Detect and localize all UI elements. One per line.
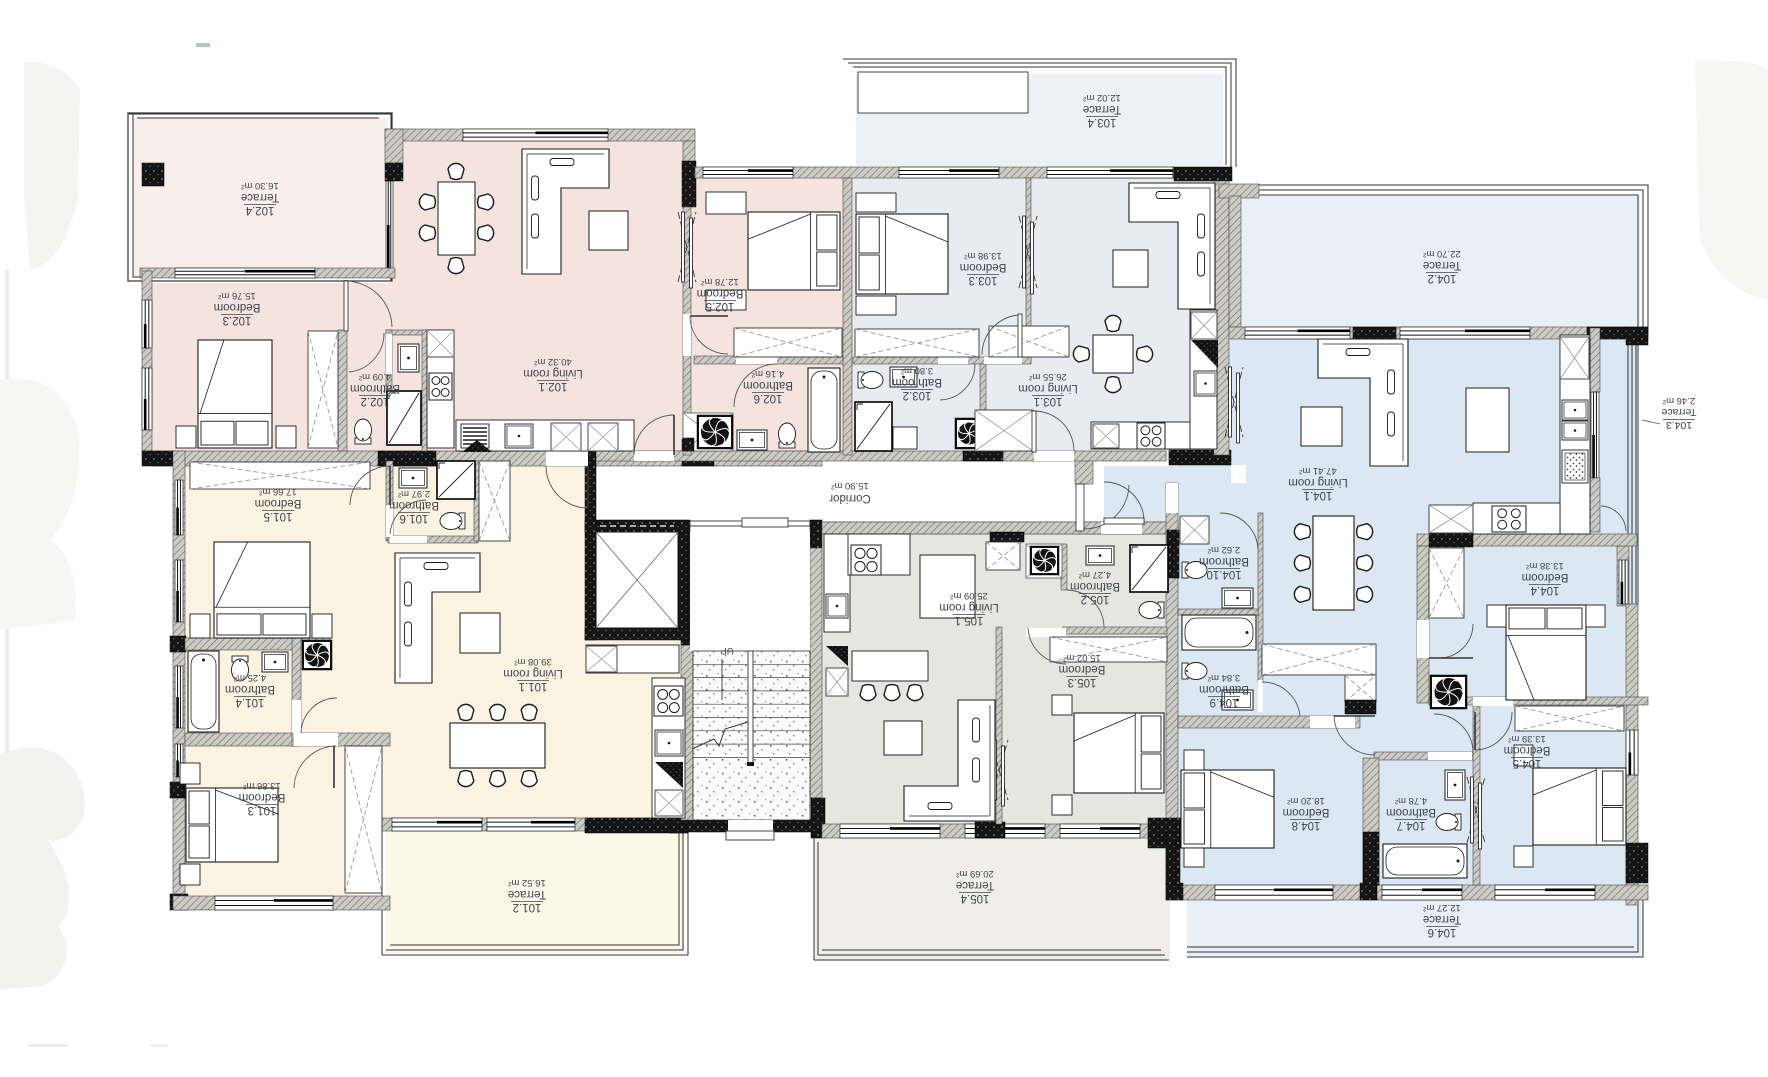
svg-text:Living room: Living room <box>503 667 562 679</box>
svg-text:26.55 m²: 26.55 m² <box>1029 371 1067 382</box>
svg-text:101.4: 101.4 <box>235 696 264 708</box>
svg-text:Terrace: Terrace <box>1423 259 1461 271</box>
svg-text:103.1: 103.1 <box>1034 395 1063 407</box>
svg-text:Bedroom: Bedroom <box>1522 571 1569 583</box>
svg-text:17.66 m²: 17.66 m² <box>259 486 297 497</box>
svg-text:3.80 m²: 3.80 m² <box>901 365 933 376</box>
svg-text:Bathroom: Bathroom <box>892 376 942 388</box>
svg-text:Corridor: Corridor <box>829 492 871 504</box>
svg-text:Bathroom: Bathroom <box>743 379 793 391</box>
svg-text:104.9: 104.9 <box>1210 696 1239 708</box>
svg-text:Terrace: Terrace <box>956 879 994 891</box>
svg-text:105.2: 105.2 <box>1081 593 1110 605</box>
svg-text:22.70 m²: 22.70 m² <box>1423 248 1461 259</box>
svg-text:Terrace: Terrace <box>1083 103 1121 115</box>
svg-text:Bathroom: Bathroom <box>1199 683 1249 695</box>
svg-text:13.38 m²: 13.38 m² <box>1526 560 1564 571</box>
svg-text:102.3: 102.3 <box>223 314 252 326</box>
svg-text:47.41 m²: 47.41 m² <box>1299 465 1337 476</box>
svg-text:Living room: Living room <box>939 601 998 613</box>
svg-text:3.84 m²: 3.84 m² <box>1208 672 1240 683</box>
svg-text:104.6: 104.6 <box>1428 926 1457 938</box>
svg-text:40.32 m²: 40.32 m² <box>534 356 572 367</box>
svg-text:104.2: 104.2 <box>1428 272 1457 284</box>
svg-text:2.62 m²: 2.62 m² <box>1208 544 1240 555</box>
svg-text:104.7: 104.7 <box>1397 819 1426 831</box>
svg-text:Bathroom: Bathroom <box>389 499 439 511</box>
svg-text:102.6: 102.6 <box>754 392 783 404</box>
svg-text:4.27 m²: 4.27 m² <box>1079 569 1111 580</box>
svg-text:Bathroom: Bathroom <box>225 683 275 695</box>
svg-text:101.3: 101.3 <box>248 804 277 816</box>
svg-text:105.4: 105.4 <box>960 892 989 904</box>
svg-text:16.52 m²: 16.52 m² <box>508 877 546 888</box>
svg-text:15.90 m²: 15.90 m² <box>831 480 869 491</box>
svg-text:4.16 m²: 4.16 m² <box>752 368 784 379</box>
svg-text:4.78 m²: 4.78 m² <box>1395 795 1427 806</box>
svg-text:Terrace: Terrace <box>1661 406 1696 418</box>
svg-text:104.8: 104.8 <box>1292 819 1321 831</box>
svg-text:15.02 m²: 15.02 m² <box>1063 652 1101 663</box>
svg-text:103.2: 103.2 <box>903 389 932 401</box>
svg-text:Bedroom: Bedroom <box>239 791 286 803</box>
svg-text:104.3: 104.3 <box>1666 419 1692 431</box>
svg-text:Living room: Living room <box>1018 382 1077 394</box>
svg-text:20.69 m²: 20.69 m² <box>956 868 994 879</box>
svg-text:Terrace: Terrace <box>508 888 546 900</box>
svg-text:105.3: 105.3 <box>1068 676 1097 688</box>
svg-text:13.39 m²: 13.39 m² <box>1508 733 1546 744</box>
svg-text:12.78 m²: 12.78 m² <box>701 276 739 287</box>
svg-text:102.4: 102.4 <box>245 204 274 216</box>
svg-text:15.76 m²: 15.76 m² <box>218 290 256 301</box>
svg-text:101.6: 101.6 <box>400 512 429 524</box>
svg-text:Bedroom: Bedroom <box>1059 663 1106 675</box>
svg-text:Bedroom: Bedroom <box>960 261 1007 273</box>
svg-text:105.1: 105.1 <box>955 614 984 626</box>
svg-text:104.5: 104.5 <box>1513 757 1542 769</box>
svg-text:UP: UP <box>720 645 733 656</box>
svg-text:103.4: 103.4 <box>1087 116 1116 128</box>
svg-text:104.4: 104.4 <box>1530 584 1559 596</box>
svg-text:25.09 m²: 25.09 m² <box>950 590 988 601</box>
svg-text:Bathroom: Bathroom <box>1070 580 1120 592</box>
svg-text:Living room: Living room <box>1288 476 1347 488</box>
svg-text:12.02 m²: 12.02 m² <box>1083 92 1121 103</box>
svg-text:101.5: 101.5 <box>264 510 293 522</box>
svg-text:Bedroom: Bedroom <box>214 301 261 313</box>
svg-text:Bathroom: Bathroom <box>1199 555 1249 567</box>
svg-text:103.3: 103.3 <box>969 274 998 286</box>
svg-text:Bedroom: Bedroom <box>255 497 302 509</box>
svg-text:Bathroom: Bathroom <box>350 382 400 394</box>
svg-text:102.2: 102.2 <box>361 395 390 407</box>
svg-text:18.20 m²: 18.20 m² <box>1287 795 1325 806</box>
svg-text:2.46 m²: 2.46 m² <box>1663 395 1695 406</box>
svg-text:13.86 m²: 13.86 m² <box>243 780 281 791</box>
svg-text:104.1: 104.1 <box>1304 489 1333 501</box>
svg-text:Bathroom: Bathroom <box>1386 806 1436 818</box>
svg-text:Terrace: Terrace <box>241 191 279 203</box>
svg-text:39.08 m²: 39.08 m² <box>514 656 552 667</box>
svg-text:4.09 m²: 4.09 m² <box>359 371 391 382</box>
svg-text:101.1: 101.1 <box>519 680 548 692</box>
svg-text:101.2: 101.2 <box>513 901 542 913</box>
svg-text:Bedroom: Bedroom <box>1283 806 1330 818</box>
svg-text:102.1: 102.1 <box>539 380 568 392</box>
svg-text:2.97 m²: 2.97 m² <box>398 488 430 499</box>
svg-text:Living room: Living room <box>523 367 582 379</box>
svg-text:13.98 m²: 13.98 m² <box>964 250 1002 261</box>
svg-text:Terrace: Terrace <box>1423 913 1461 925</box>
svg-text:102.5: 102.5 <box>706 300 735 312</box>
svg-text:Bedroom: Bedroom <box>697 287 744 299</box>
svg-text:104.10: 104.10 <box>1206 568 1241 580</box>
svg-text:4.25 m²: 4.25 m² <box>234 672 266 683</box>
svg-text:Bedroom: Bedroom <box>1504 744 1551 756</box>
svg-text:16.30 m²: 16.30 m² <box>241 180 279 191</box>
svg-text:12.27 m²: 12.27 m² <box>1423 902 1461 913</box>
